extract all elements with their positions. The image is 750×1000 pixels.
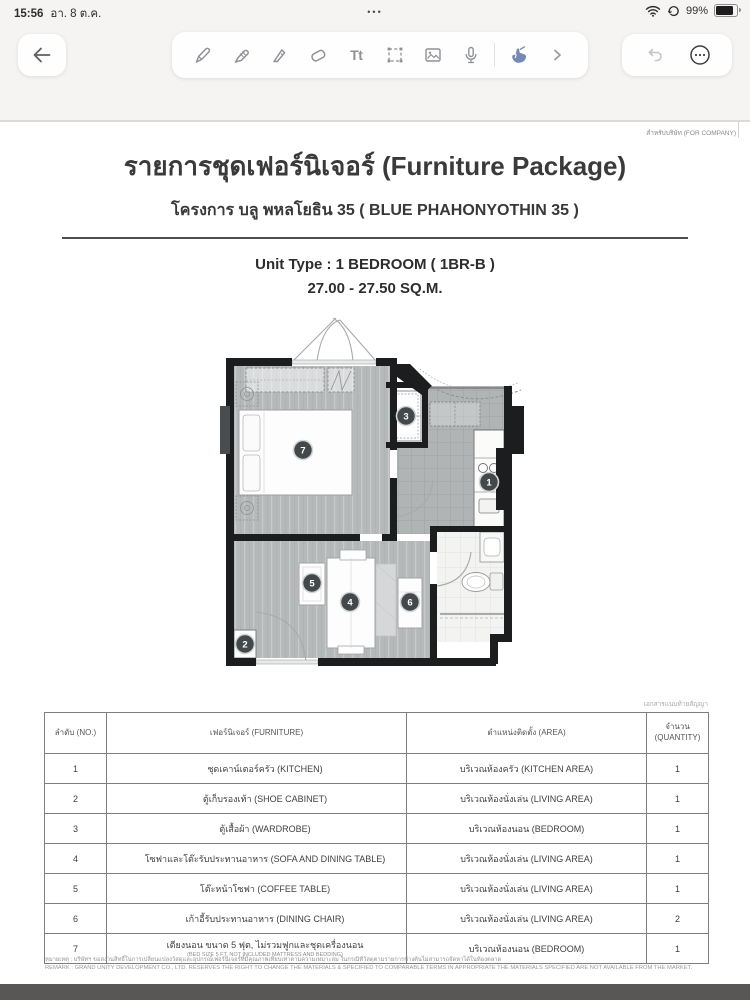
plan-marker-shoe-cabinet: 2 <box>236 635 255 654</box>
title-divider <box>62 237 688 239</box>
pen-tool-button[interactable] <box>265 40 295 70</box>
headboard-shelf <box>246 368 354 392</box>
svg-text:7: 7 <box>300 446 305 457</box>
corner-line <box>738 122 739 138</box>
cell-no: 6 <box>45 904 107 934</box>
tool-palette: Tt <box>172 32 588 78</box>
bottom-edge-bar <box>0 984 750 1000</box>
status-date: อา. 8 ต.ค. <box>50 5 101 23</box>
cell-no: 4 <box>45 844 107 874</box>
text-tool-icon: Tt <box>350 47 362 63</box>
toolbar-divider <box>494 43 495 67</box>
clock: 15:56 <box>14 8 43 20</box>
cell-no: 2 <box>45 784 107 814</box>
more-tools-button[interactable] <box>542 40 572 70</box>
marker-icon <box>231 44 253 66</box>
wifi-icon <box>645 5 661 17</box>
cell-quantity: 1 <box>647 754 709 784</box>
table-row: 4โซฟาและโต๊ะรับประทานอาหาร (SOFA AND DIN… <box>45 844 709 874</box>
cell-furniture: ตู้เก็บรองเท้า (SHOE CABINET) <box>107 784 407 814</box>
cell-furniture: โต๊ะหน้าโซฟา (COFFEE TABLE) <box>107 874 407 904</box>
plan-marker-coffee-table: 5 <box>303 574 322 593</box>
svg-text:3: 3 <box>403 412 408 423</box>
plan-marker-sofa-dining-table: 4 <box>341 593 360 612</box>
pen-icon <box>269 44 291 66</box>
plan-marker-kitchen-counter: 1 <box>480 473 499 492</box>
header-no: ลำดับ (NO.) <box>45 713 107 754</box>
microphone-icon <box>460 44 482 66</box>
header-area: ตำแหน่งติดตั้ง (AREA) <box>407 713 647 754</box>
cell-quantity: 1 <box>647 844 709 874</box>
more-options-button[interactable] <box>685 40 715 70</box>
table-row: 2ตู้เก็บรองเท้า (SHOE CABINET)บริเวณห้อง… <box>45 784 709 814</box>
table-row: 3ตู้เสื้อผ้า (WARDROBE)บริเวณห้องนอน (BE… <box>45 814 709 844</box>
marker-tool-button[interactable] <box>227 40 257 70</box>
battery-icon <box>714 4 738 17</box>
cell-quantity: 1 <box>647 814 709 844</box>
cell-no: 3 <box>45 814 107 844</box>
project-subtitle: โครงการ บลู พหลโยธิน 35 ( BLUE PHAHONYOT… <box>0 198 750 223</box>
eraser-icon <box>307 44 329 66</box>
hand-pointer-tool-button[interactable] <box>504 40 534 70</box>
cell-quantity: 1 <box>647 874 709 904</box>
cell-area: บริเวณห้องนั่งเล่น (LIVING AREA) <box>407 784 647 814</box>
svg-text:6: 6 <box>407 598 412 609</box>
status-bar: 15:56 อา. 8 ต.ค. ••• 99% <box>0 0 750 26</box>
cell-area: บริเวณห้องนอน (BEDROOM) <box>407 814 647 844</box>
document-title: รายการชุดเฟอร์นิเจอร์ (Furniture Package… <box>0 146 750 187</box>
lasso-icon <box>384 44 406 66</box>
undo-button[interactable] <box>639 40 669 70</box>
text-tool-button[interactable]: Tt <box>341 40 371 70</box>
rug <box>376 564 396 636</box>
ellipsis-circle-icon <box>688 43 712 67</box>
back-arrow-icon <box>31 45 53 65</box>
document-page: สำหรับบริษัท (FOR COMPANY) รายการชุดเฟอร… <box>0 122 750 984</box>
table-row: 5โต๊ะหน้าโซฟา (COFFEE TABLE)บริเวณห้องนั… <box>45 874 709 904</box>
cell-no: 1 <box>45 754 107 784</box>
cell-quantity: 2 <box>647 904 709 934</box>
kitchen-upper-cabinet <box>430 402 480 426</box>
plan-marker-wardrobe: 3 <box>397 407 416 426</box>
multitask-dots: ••• <box>367 7 382 17</box>
svg-text:1: 1 <box>486 478 492 489</box>
image-tool-button[interactable] <box>418 40 448 70</box>
table-header-row: ลำดับ (NO.) เฟอร์นิเจอร์ (FURNITURE) ตำแ… <box>45 713 709 754</box>
remark-english: REMARK : GRAND UNITY DEVELOPMENT CO., LT… <box>45 965 705 971</box>
cell-furniture: ชุดเคาน์เตอร์ครัว (KITCHEN) <box>107 754 407 784</box>
cell-furniture: โซฟาและโต๊ะรับประทานอาหาร (SOFA AND DINI… <box>107 844 407 874</box>
battery-percent: 99% <box>686 5 708 17</box>
pencil-icon <box>192 44 214 66</box>
table-row: 1ชุดเคาน์เตอร์ครัว (KITCHEN)บริเวณห้องคร… <box>45 754 709 784</box>
microphone-tool-button[interactable] <box>456 40 486 70</box>
image-icon <box>422 44 444 66</box>
undo-menu-card <box>622 34 732 76</box>
floor-plan: 1234567 <box>190 312 560 678</box>
for-company-note: สำหรับบริษัท (FOR COMPANY) <box>646 128 736 138</box>
cell-quantity: 1 <box>647 784 709 814</box>
toilet <box>462 573 503 592</box>
plan-marker-bed: 7 <box>294 441 313 460</box>
plan-marker-dining-chair: 6 <box>401 593 420 612</box>
table-note: เอกสารแนบท้ายสัญญา <box>644 699 708 709</box>
cell-area: บริเวณห้องนั่งเล่น (LIVING AREA) <box>407 844 647 874</box>
eraser-tool-button[interactable] <box>303 40 333 70</box>
unit-type: Unit Type : 1 BEDROOM ( 1BR-B ) <box>0 256 750 273</box>
rotation-lock-icon <box>667 4 680 17</box>
furniture-table: ลำดับ (NO.) เฟอร์นิเจอร์ (FURNITURE) ตำแ… <box>44 712 708 964</box>
remark-thai: หมายเหตุ : บริษัทฯ ขอสงวนสิทธิ์ในการเปลี… <box>45 954 705 964</box>
cell-no: 5 <box>45 874 107 904</box>
unit-area: 27.00 - 27.50 SQ.M. <box>0 280 750 297</box>
chevron-right-icon <box>548 46 566 64</box>
header-quantity: จำนวน (QUANTITY) <box>647 713 709 754</box>
svg-text:5: 5 <box>309 579 315 590</box>
lasso-tool-button[interactable] <box>380 40 410 70</box>
hand-pointer-icon <box>507 43 531 67</box>
cell-furniture: เก้าอี้รับประทานอาหาร (DINING CHAIR) <box>107 904 407 934</box>
cell-area: บริเวณห้องนั่งเล่น (LIVING AREA) <box>407 904 647 934</box>
cell-area: บริเวณห้องครัว (KITCHEN AREA) <box>407 754 647 784</box>
cell-area: บริเวณห้องนั่งเล่น (LIVING AREA) <box>407 874 647 904</box>
header-furniture: เฟอร์นิเจอร์ (FURNITURE) <box>107 713 407 754</box>
cell-furniture: ตู้เสื้อผ้า (WARDROBE) <box>107 814 407 844</box>
bathroom-sink <box>480 532 504 562</box>
undo-icon <box>643 44 665 66</box>
svg-text:4: 4 <box>347 598 353 609</box>
pencil-tool-button[interactable] <box>188 40 218 70</box>
table-row: 6เก้าอี้รับประทานอาหาร (DINING CHAIR)บริ… <box>45 904 709 934</box>
back-button[interactable] <box>18 34 66 76</box>
svg-text:2: 2 <box>242 640 247 651</box>
